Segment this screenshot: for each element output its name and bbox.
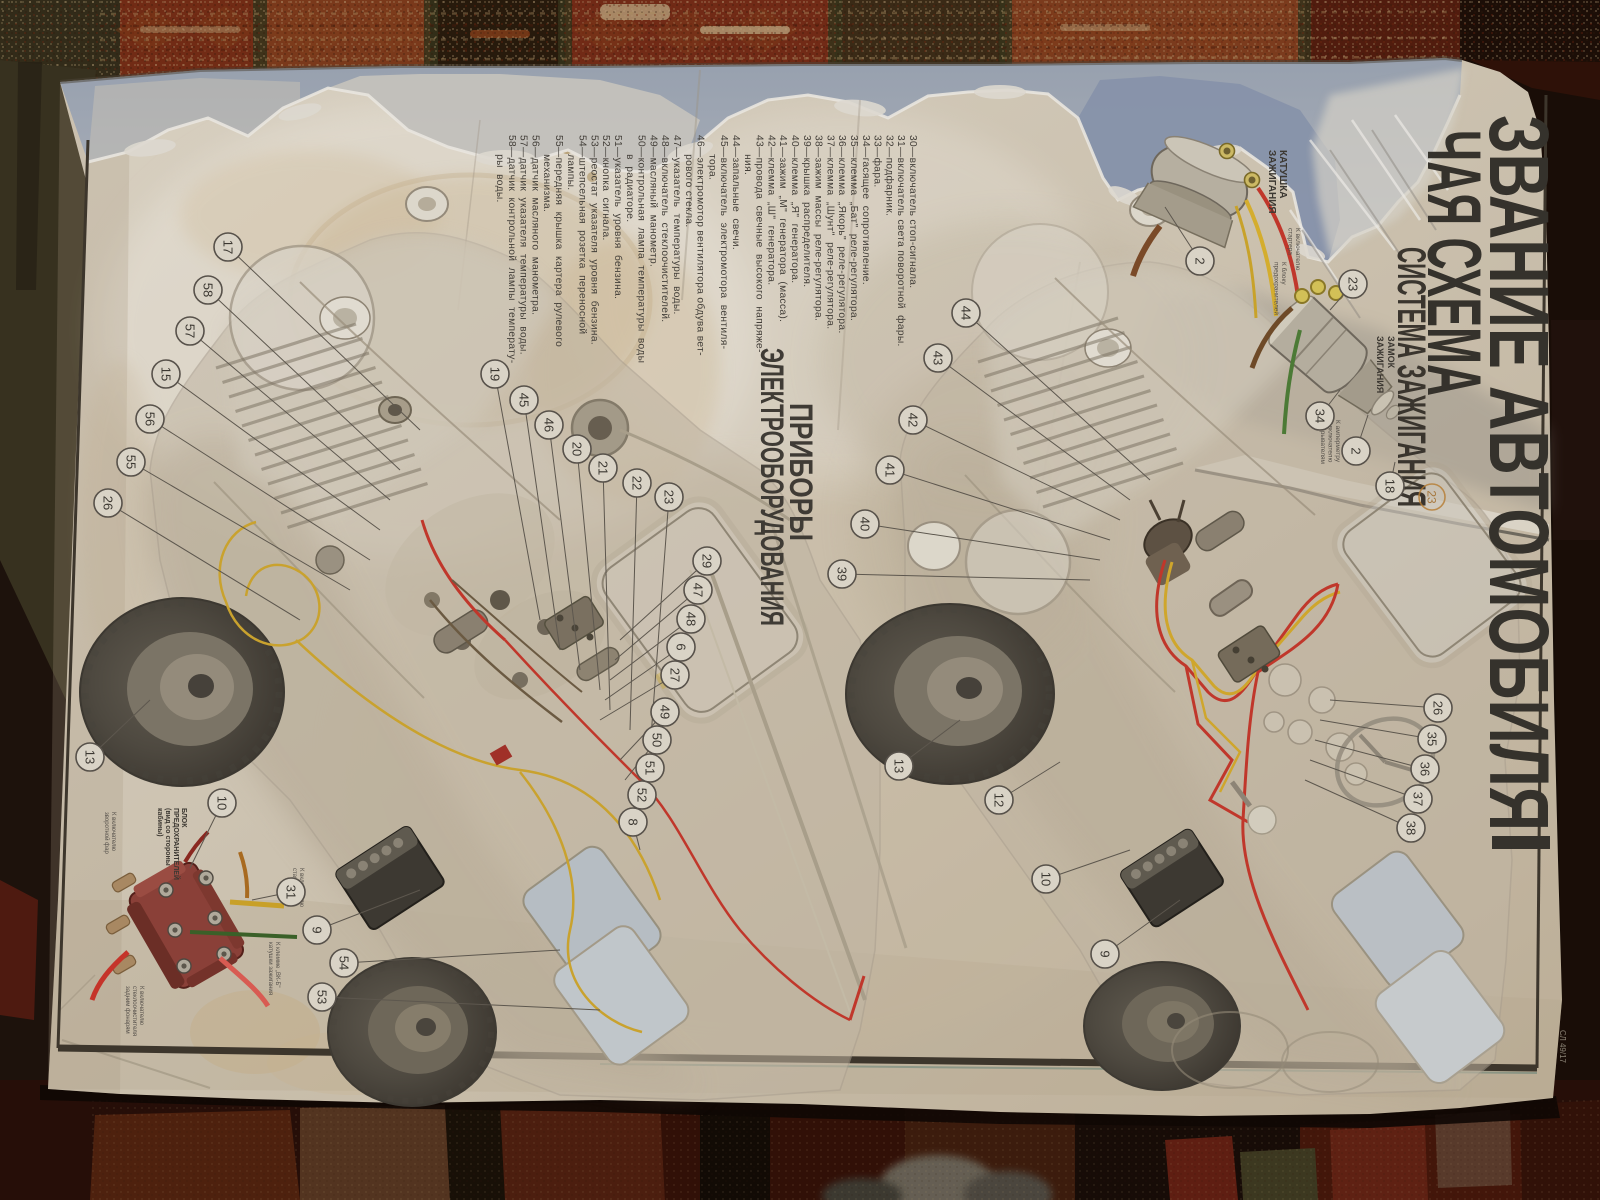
svg-text:48: 48 — [683, 612, 698, 626]
svg-text:6: 6 — [673, 643, 688, 650]
svg-text:51: 51 — [642, 761, 657, 775]
svg-text:41: 41 — [882, 463, 897, 477]
svg-text:17: 17 — [220, 240, 235, 254]
svg-text:26: 26 — [1430, 701, 1445, 715]
svg-text:18: 18 — [1382, 479, 1397, 493]
svg-text:22: 22 — [629, 476, 644, 490]
svg-text:12: 12 — [991, 793, 1006, 807]
svg-text:49: 49 — [657, 705, 672, 719]
svg-text:СЛ 49/17: СЛ 49/17 — [1558, 1030, 1567, 1064]
svg-text:2: 2 — [1348, 447, 1363, 454]
svg-text:53: 53 — [314, 990, 329, 1004]
svg-text:23: 23 — [661, 490, 676, 504]
svg-text:39: 39 — [834, 567, 849, 581]
svg-text:8: 8 — [625, 818, 640, 825]
svg-text:31: 31 — [283, 885, 298, 899]
svg-text:45: 45 — [516, 393, 531, 407]
svg-text:50: 50 — [649, 733, 664, 747]
svg-text:37: 37 — [1410, 792, 1425, 806]
svg-text:15: 15 — [158, 367, 173, 381]
svg-text:47: 47 — [690, 583, 705, 597]
svg-text:10: 10 — [1038, 872, 1053, 886]
svg-text:2: 2 — [1192, 257, 1207, 264]
svg-text:42: 42 — [905, 413, 920, 427]
svg-text:36: 36 — [1417, 762, 1432, 776]
svg-text:55: 55 — [123, 455, 138, 469]
svg-text:29: 29 — [699, 554, 714, 568]
svg-text:К включателю зворотной фа: К включателю зворотной фар — [103, 812, 116, 854]
svg-text:56: 56 — [142, 412, 157, 426]
svg-text:СИСТЕМА ЗАЖИГАНИЯ: СИСТЕМА ЗАЖИГАНИЯ — [1389, 247, 1433, 507]
svg-text:52: 52 — [634, 788, 649, 802]
svg-text:21: 21 — [595, 461, 610, 475]
svg-text:58: 58 — [200, 283, 215, 297]
svg-text:43: 43 — [930, 351, 945, 365]
svg-text:ЭЛЕКТРООБОРУДОВАНИЯ: ЭЛЕКТРООБОРУДОВАНИЯ — [754, 348, 790, 626]
svg-text:19: 19 — [487, 367, 502, 381]
svg-text:К клемме „ВК-Б" катушки: К клемме „ВК-Б" катушки зажигания — [267, 942, 280, 995]
svg-text:46: 46 — [541, 418, 556, 432]
svg-text:40: 40 — [857, 517, 872, 531]
svg-text:44: 44 — [958, 306, 973, 320]
svg-text:57: 57 — [182, 324, 197, 338]
svg-text:35: 35 — [1424, 732, 1439, 746]
svg-text:10: 10 — [214, 796, 229, 810]
svg-text:9: 9 — [1097, 950, 1112, 957]
svg-text:34: 34 — [1312, 409, 1327, 423]
svg-text:27: 27 — [667, 668, 682, 682]
svg-text:9: 9 — [309, 926, 324, 933]
svg-text:20: 20 — [569, 442, 584, 456]
svg-text:13: 13 — [891, 759, 906, 773]
svg-text:13: 13 — [82, 750, 97, 764]
svg-text:23: 23 — [1345, 277, 1360, 291]
svg-text:26: 26 — [100, 496, 115, 510]
svg-text:38: 38 — [1403, 821, 1418, 835]
svg-text:23: 23 — [1425, 490, 1439, 504]
svg-text:54: 54 — [336, 956, 351, 970]
